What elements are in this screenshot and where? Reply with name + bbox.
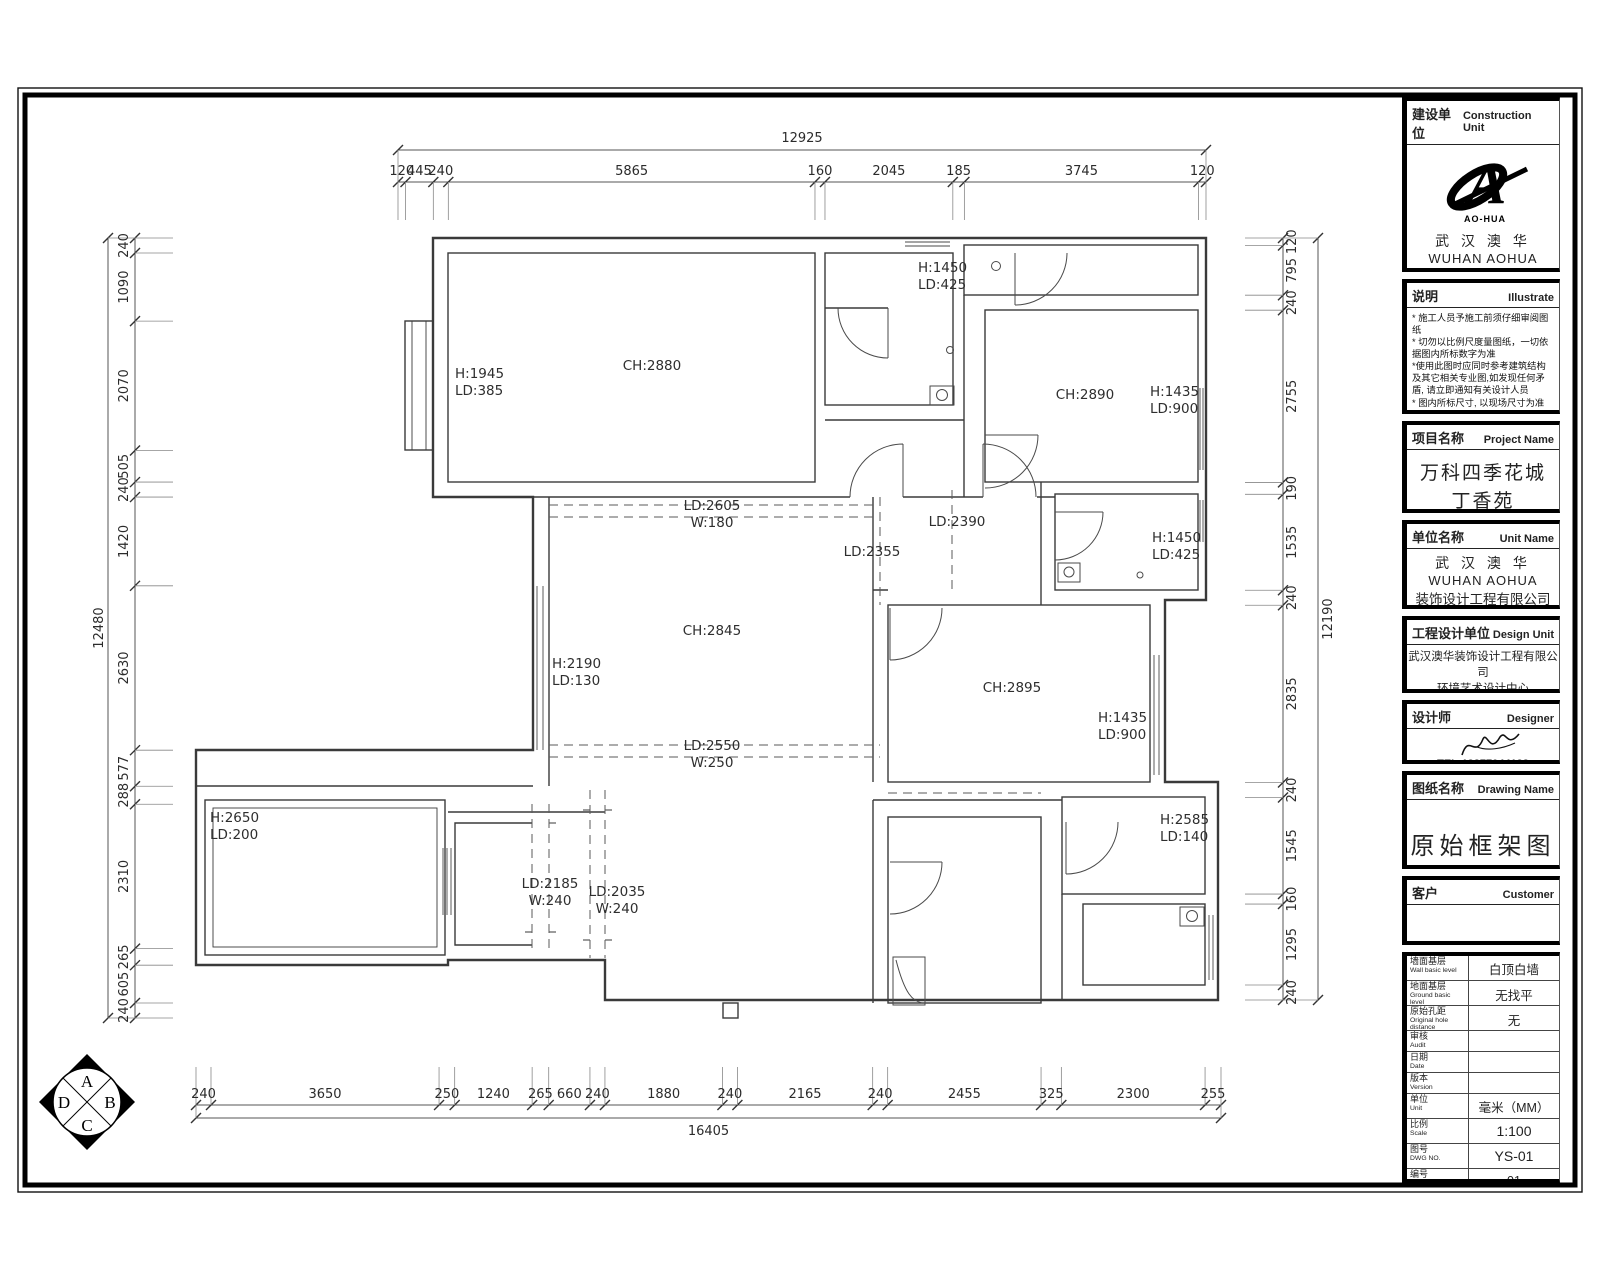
unit-company-cn: 武 汉 澳 华 (1407, 553, 1559, 573)
dimension-text: 1545 (1285, 829, 1300, 862)
dimension-text: 265 (117, 944, 132, 969)
drawing-name-value: 原始框架图 (1407, 826, 1559, 861)
room-label: CH:2880 (623, 358, 681, 374)
illustrate-notes: * 施工人员予施工前须仔细审阅图纸* 切勿以比例尺度量图纸，一切依据图内所标数字… (1407, 308, 1559, 414)
room-label: CH:2890 (1056, 387, 1114, 403)
section-unit-name: 单位名称 Unit Name 武 汉 澳 华 WUHAN AOHUA 装饰设计工… (1402, 520, 1560, 609)
construction-unit-label-cn: 建设单位 (1412, 104, 1463, 142)
dimension-text: 1295 (1285, 928, 1300, 961)
info-row: 单位Unit毫米（MM） (1407, 1094, 1559, 1119)
dimension-text: 12925 (781, 131, 822, 146)
customer-label-cn: 客户 (1412, 883, 1438, 902)
info-row-label: 原始孔距Original hole distance (1407, 1006, 1469, 1033)
dimension-text: 240 (585, 1087, 610, 1102)
dimension-text: 240 (117, 233, 132, 258)
dimension-text: 2165 (788, 1087, 821, 1102)
design-unit-label-en: Design Unit (1493, 629, 1554, 641)
drawing-name-label-en: Drawing Name (1478, 784, 1554, 796)
project-name-label-en: Project Name (1484, 434, 1554, 446)
info-row: 版本Version (1407, 1073, 1559, 1094)
info-row: 日期Date (1407, 1052, 1559, 1073)
info-row-value (1469, 1073, 1559, 1093)
north-compass-icon: A B C D (39, 1054, 135, 1150)
info-row-label: 单位Unit (1407, 1094, 1469, 1118)
dimension-text: 12480 (92, 607, 107, 648)
room-label: H:1450LD:425 (918, 260, 967, 293)
info-row: 图号DWG NO.YS-01 (1407, 1144, 1559, 1169)
dimension-text: 2045 (872, 164, 905, 179)
compass-letter-a: A (81, 1072, 94, 1091)
dimension-text: 2835 (1285, 677, 1300, 710)
dimension-text: 120 (1285, 229, 1300, 254)
aohua-logo: A AO-HUA (1407, 147, 1559, 230)
dimension-text: 577 (117, 756, 132, 781)
room-label: H:2650LD:200 (210, 810, 259, 843)
dimension-text: 605 (117, 972, 132, 997)
company-name-cn2: 装饰设计工程有限公司 (1407, 266, 1559, 272)
info-row: 原始孔距Original hole distance无 (1407, 1006, 1559, 1031)
dimension-text: 250 (434, 1087, 459, 1102)
room-label: H:1945LD:385 (455, 366, 504, 399)
section-info-table: 墙面基层Wall basic level白顶白墙地面基层Ground basic… (1402, 952, 1560, 1183)
section-customer: 客户 Customer (1402, 876, 1560, 945)
note-line: * 施工人员予施工前须仔细审阅图纸 (1412, 312, 1554, 336)
unit-company-cn2: 装饰设计工程有限公司 (1407, 588, 1559, 608)
title-block: 建设单位 Construction Unit A AO-HUA 武 汉 澳 华 … (1402, 97, 1560, 1183)
compass-letter-d: D (58, 1093, 70, 1112)
compass-letter-b: B (104, 1093, 115, 1112)
info-row-label: 日期Date (1407, 1052, 1469, 1072)
dimension-text: 240 (1285, 585, 1300, 610)
dimension-text: 160 (1285, 887, 1300, 912)
dimension-text: 240 (191, 1087, 216, 1102)
customer-label-en: Customer (1503, 889, 1554, 901)
illustrate-label-en: Illustrate (1508, 292, 1554, 304)
room-label: LD:2390 (929, 514, 986, 530)
drawing-sheet: 1204452405865160204518537451201292524036… (0, 0, 1600, 1279)
construction-unit-label-en: Construction Unit (1463, 110, 1554, 134)
compass-letter-c: C (81, 1116, 92, 1135)
section-design-unit: 工程设计单位 Design Unit 武汉澳华装饰设计工程有限公司 环境艺术设计… (1402, 616, 1560, 693)
dimension-text: 240 (1285, 778, 1300, 803)
design-unit-line2: 环境艺术设计中心 (1407, 680, 1559, 693)
info-row-label: 版本Version (1407, 1073, 1469, 1093)
dimension-text: 2310 (117, 860, 132, 893)
project-name-label-cn: 项目名称 (1412, 428, 1464, 447)
dimension-text: 660 (557, 1087, 582, 1102)
section-construction-unit: 建设单位 Construction Unit A AO-HUA 武 汉 澳 华 … (1402, 97, 1560, 272)
designer-label-cn: 设计师 (1412, 707, 1451, 726)
dimension-text: 2630 (117, 651, 132, 684)
doors (838, 253, 1118, 914)
info-row-value: 无 (1469, 1006, 1559, 1033)
design-unit-line1: 武汉澳华装饰设计工程有限公司 (1407, 648, 1559, 680)
room-label: H:1435LD:900 (1098, 710, 1147, 743)
dimension-text: 240 (1285, 290, 1300, 315)
dimension-text: 795 (1285, 258, 1300, 283)
dimension-text: 160 (808, 164, 833, 179)
info-row-label: 比例Scale (1407, 1119, 1469, 1143)
info-row-label: 图号DWG NO. (1407, 1144, 1469, 1168)
dimension-text: 1535 (1285, 526, 1300, 559)
dimension-text: 185 (946, 164, 971, 179)
section-illustrate: 说明 Illustrate * 施工人员予施工前须仔细审阅图纸* 切勿以比例尺度… (1402, 279, 1560, 414)
dimension-text: 288 (117, 783, 132, 808)
dimension-text: 255 (1201, 1087, 1226, 1102)
dimension-text: 2455 (948, 1087, 981, 1102)
room-label: LD:2185W:240 (522, 876, 579, 909)
note-line: *使用此图时应同时参考建筑结构及其它相关专业图,如发现任何矛盾, 请立即通知有关… (1412, 360, 1554, 396)
dimension-text: 240 (117, 998, 132, 1023)
info-row-value (1469, 1052, 1559, 1072)
dimension-text: 240 (428, 164, 453, 179)
dimension-text: 1240 (477, 1087, 510, 1102)
room-labels: H:1945LD:385CH:2880H:1450LD:425CH:2890H:… (210, 260, 1209, 917)
dimension-text: 12190 (1321, 598, 1336, 639)
info-row-label: 编号NO. (1407, 1169, 1469, 1183)
drawing-name-label-cn: 图纸名称 (1412, 778, 1464, 797)
dimension-text: 240 (1285, 980, 1300, 1005)
info-row-value: 1:100 (1469, 1119, 1559, 1143)
room-label: LD:2550W:250 (684, 738, 741, 771)
info-row-value (1469, 1031, 1559, 1051)
room-label: LD:2605W:180 (684, 498, 741, 531)
info-row-value: 无找平 (1469, 981, 1559, 1008)
dimension-text: 325 (1039, 1087, 1064, 1102)
dimension-text: 1420 (117, 525, 132, 558)
project-name-value: 万科四季花城 丁香苑 (1407, 460, 1559, 513)
note-line: * 建筑结构以设计院建筑结构图为准 (1412, 409, 1554, 414)
unit-company-en2: Decoration Design Engineering Co.,Ltd (1407, 608, 1559, 609)
room-label: H:2190LD:130 (552, 656, 601, 689)
note-line: * 切勿以比例尺度量图纸，一切依据图内所标数字为准 (1412, 336, 1554, 360)
info-row-label: 审核Audit (1407, 1031, 1469, 1051)
dimension-text: 240 (868, 1087, 893, 1102)
info-row: 比例Scale1:100 (1407, 1119, 1559, 1144)
unit-name-label-cn: 单位名称 (1412, 527, 1464, 546)
section-designer: 设计师 Designer TEL:13277044133 (1402, 700, 1560, 764)
dimension-text: 3650 (308, 1087, 341, 1102)
info-row: 编号NO.01 (1407, 1169, 1559, 1183)
dimension-text: 240 (717, 1087, 742, 1102)
dimension-text: 2755 (1285, 380, 1300, 413)
info-row-value: 白顶白墙 (1469, 956, 1559, 980)
dimension-text: 120 (1190, 164, 1215, 179)
info-row-value: YS-01 (1469, 1144, 1559, 1168)
info-row-label: 地面基层Ground basic level (1407, 981, 1469, 1008)
illustrate-label-cn: 说明 (1412, 286, 1438, 305)
dimension-text: 16405 (688, 1124, 729, 1139)
design-unit-label-cn: 工程设计单位 (1412, 623, 1490, 642)
info-row-value: 毫米（MM） (1469, 1094, 1559, 1118)
floor-plan-canvas: 1204452405865160204518537451201292524036… (0, 0, 1600, 1279)
room-label: LD:2035W:240 (589, 884, 646, 917)
dimension-text: 3745 (1065, 164, 1098, 179)
dimension-text: 2070 (117, 369, 132, 402)
room-label: H:2585LD:140 (1160, 812, 1209, 845)
unit-company-en: WUHAN AOHUA (1407, 573, 1559, 588)
room-label: H:1450LD:425 (1152, 530, 1201, 563)
dimension-text: 190 (1285, 476, 1300, 501)
info-row: 墙面基层Wall basic level白顶白墙 (1407, 956, 1559, 981)
room-label: CH:2845 (683, 623, 741, 639)
dimension-text: 5865 (615, 164, 648, 179)
info-row-label: 墙面基层Wall basic level (1407, 956, 1469, 980)
designer-label-en: Designer (1507, 713, 1554, 725)
dimension-text: 2300 (1117, 1087, 1150, 1102)
info-row: 审核Audit (1407, 1031, 1559, 1052)
dimension-text: 240 (117, 477, 132, 502)
designer-signature (1407, 729, 1557, 759)
room-label: LD:2355 (844, 544, 901, 560)
section-project-name: 项目名称 Project Name 万科四季花城 丁香苑 (1402, 421, 1560, 513)
company-name-cn: 武 汉 澳 华 (1407, 231, 1559, 251)
note-line: * 图内所标尺寸, 以现场尺寸为准 (1412, 397, 1554, 409)
windows (443, 242, 1213, 980)
logo-text: AO-HUA (1464, 214, 1506, 224)
room-label: CH:2895 (983, 680, 1041, 696)
info-table: 墙面基层Wall basic level白顶白墙地面基层Ground basic… (1407, 956, 1559, 1183)
unit-name-label-en: Unit Name (1500, 533, 1554, 545)
company-name-en: WUHAN AOHUA (1407, 251, 1559, 266)
dimension-text: 265 (528, 1087, 553, 1102)
info-row-value: 01 (1469, 1169, 1559, 1183)
dimension-text: 505 (117, 454, 132, 479)
section-drawing-name: 图纸名称 Drawing Name 原始框架图 (1402, 771, 1560, 869)
info-row: 地面基层Ground basic level无找平 (1407, 981, 1559, 1006)
dimension-text: 1090 (117, 271, 132, 304)
dimension-text: 1880 (647, 1087, 680, 1102)
room-label: H:1435LD:900 (1150, 384, 1199, 417)
